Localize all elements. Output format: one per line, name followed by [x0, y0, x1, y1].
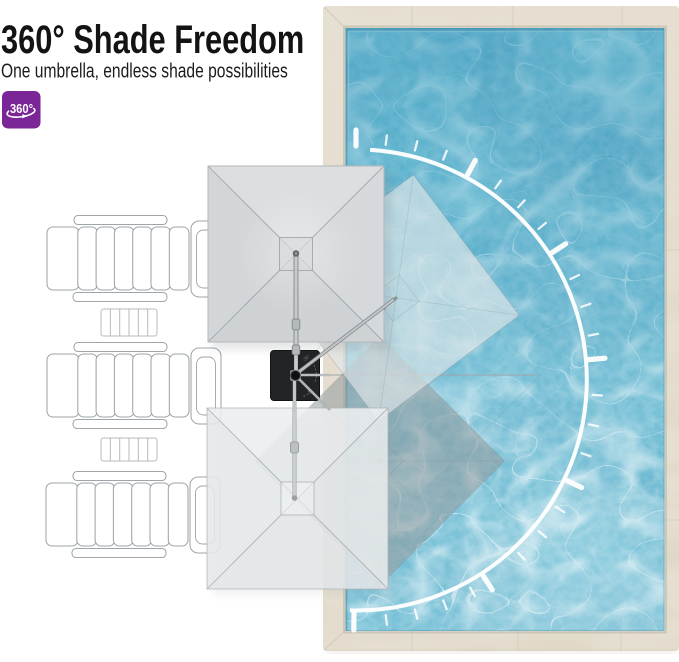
- svg-text:360°: 360°: [10, 101, 33, 116]
- svg-text:One umbrella, endless shade po: One umbrella, endless shade possibilitie…: [1, 60, 288, 82]
- svg-text:360° Shade Freedom: 360° Shade Freedom: [1, 17, 304, 62]
